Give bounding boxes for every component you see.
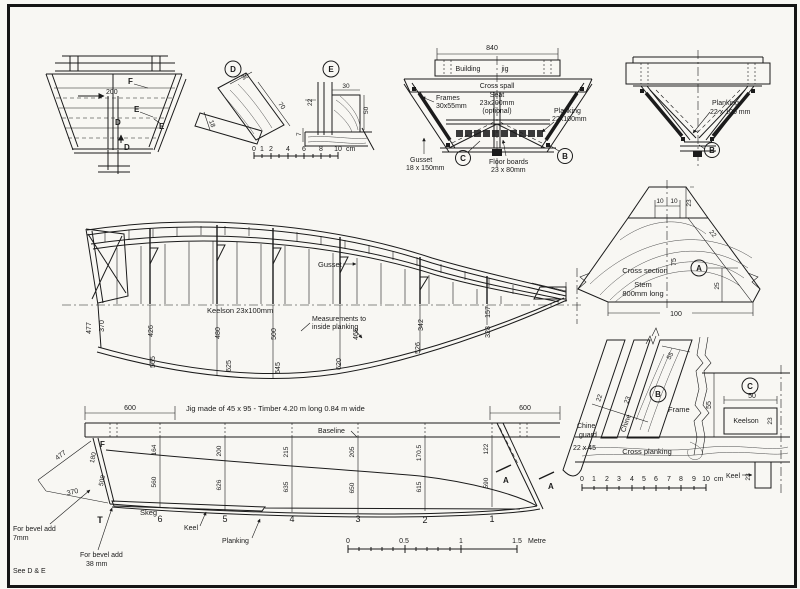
plan-chine-curve [106,450,537,506]
chine-dim-22: 22 [595,393,604,402]
detail-e: E 30 22 50 7 [296,61,374,150]
plan-jig-note: Jig made of 45 x 95 - Timber 4.20 m long… [186,404,365,413]
cm-c-10: 10 [702,476,710,483]
mid-seat-lines [446,120,550,124]
mid-gusset-label1: Gusset [410,157,432,164]
plan-label-a1: A [503,476,509,485]
cm-c-6: 6 [654,476,658,483]
keel-rect [755,462,771,488]
profile-meas-label2: inside planking [312,324,358,331]
profile-dim: 500 [271,328,278,340]
profile-meas-label1: Measurements to [312,316,366,323]
cm-c-7: 7 [667,476,671,483]
note-bevel1-line2: 7mm [13,535,29,542]
cm-s-0: 0 [252,146,256,153]
note-bevel1-line1: For bevel add [13,526,56,533]
metre-1: 1 [459,538,463,545]
plan-dim: 164 [151,444,158,455]
profile-dim: 565 [150,356,157,368]
mid-floor-label1: Floor boards [489,159,529,166]
midship-section: 840 Building jig Cross spall Frames 30x5… [404,45,592,174]
plan-keel-leader [200,512,206,526]
plan-dim: 200 [216,445,223,456]
mid-c-leader [468,141,480,152]
plan-keel-label: Keel [184,525,198,532]
profile-bottom-1 [98,298,564,374]
mid-frames-label2: 30x55mm [436,103,467,110]
detail-e-dim-top: 30 [342,83,350,90]
plan-bow-hidden [500,428,518,464]
stern-dim-200: 200 [106,89,118,96]
profile-dim: 370 [99,320,106,332]
cm-s-1: 1 [260,146,264,153]
mid-building-label: Building [456,66,481,73]
bow-planking-label1: Planking [712,100,739,107]
profile-dim: 426 [148,325,155,337]
plan-dim: 626 [216,479,223,490]
detail-e-badge: E [328,65,334,74]
stem-dim-25: 25 [714,282,721,290]
profile-gussets [150,245,428,290]
chine-guard-label1: Chine [577,423,595,430]
mid-badge-b: B [562,152,568,161]
detail-e-dim-right: 50 [363,106,370,114]
note-bevel2-line1: For bevel add [80,552,123,559]
plan-dim: 635 [283,481,290,492]
profile-bottom-2 [97,300,567,379]
metre-bar [348,545,517,553]
profile-dim: 620 [336,358,343,370]
stem-dim-10a: 10 [656,198,664,205]
stem-break-marks [578,273,760,289]
bow-hull-outline [633,86,762,151]
profile-view: 477 370 426 480 500 465 342 157 565 625 … [62,222,584,378]
bow-section: Planking 22 x 100 mm B [626,50,770,168]
profile-gusset-label: Gusset [318,260,343,269]
plan-dim: 650 [349,482,356,493]
plan-dim-180: 180 [89,451,98,463]
profile-stringer-2 [93,241,559,302]
cm-c-5: 5 [642,476,646,483]
cm-s-bar [254,152,338,159]
plan-station-6: 6 [157,514,162,524]
plan-dim: 560 [151,476,158,487]
profile-dim: 625 [226,360,233,372]
mid-floor-label2: 23 x 80mm [491,167,526,174]
plan-dim-370: 370 [66,488,79,497]
profile-dim: 526 [415,342,422,354]
keelson-label: Keelson [733,418,758,425]
plan-skeg-keel [112,501,520,511]
chine-dim-55-vert: 55 [706,401,713,409]
chine-chine-label: Chine [620,414,633,434]
detail-e-dim-bottom: 7 [296,132,303,136]
detail-e-dim-left: 22 [307,98,314,106]
metre-15: 1.5 [512,538,522,545]
stem-section: 10 10 23 22 75 25 100 Cross section Stem… [578,180,760,318]
cm-s-8: 8 [319,146,323,153]
plan-planking-label: Planking [222,538,249,545]
stern-label-e1: E [134,105,140,114]
cm-c-2: 2 [605,476,609,483]
bow-keel-bolt [693,151,702,157]
chine-badge-b: B [655,390,661,399]
cross-planking-label: Cross planking [622,447,672,456]
mid-planking-label1: Planking [554,108,581,115]
cm-s-6: 6 [302,146,306,153]
stern-jig-beams [55,56,175,71]
stem-dim-22: 22 [707,229,717,239]
stern-label-f: F [128,77,133,86]
keel-dim-23: 23 [745,473,752,481]
frame-band [627,340,692,438]
plan-station-1: 1 [489,514,494,524]
profile-dim: 480 [215,327,222,339]
stern-view: 200 F E E D D [46,56,186,174]
mid-planking-label2: 22x100mm [552,116,587,123]
stem-title: Cross section [622,266,667,275]
plan-dim-600-right: 600 [519,405,531,412]
bow-planking-label2: 22 x 100 mm [710,109,751,116]
stem-dim-75: 75 [671,258,678,266]
chine-guard-label2: guard [579,432,597,439]
detail-d-badge: D [230,65,236,74]
chine-detail: 22 23 55 B Frame Chine Chine guard 22 x … [563,328,790,495]
plan-dim: 215 [283,446,290,457]
profile-dim: 157 [485,306,492,318]
profile-keelson-label: Keelson 23x100mm [207,306,273,315]
metre-unit: Metre [528,538,546,545]
chine-break-top [646,328,659,344]
plan-station-T: T [97,515,103,525]
chine-guard-band [563,340,625,476]
chine-badge-c: C [747,382,753,391]
detail-e-vertical-plank [318,82,332,135]
metre-scale: 0 0.5 1 1.5 Metre [346,538,546,553]
plan-dim-477: 477 [54,449,68,462]
plan-label-a2: A [548,482,554,491]
plan-baseline-label: Baseline [318,428,345,435]
metre-05: 0.5 [399,538,409,545]
detail-d-dim-lines [230,72,290,126]
mid-badge-c: C [460,154,466,163]
detail-e-plank-grain [308,137,368,144]
stem-dim-23: 23 [686,199,693,207]
stem-label: Stem [634,280,652,289]
profile-dim: 328 [485,326,492,338]
mid-seat-label2: 23x200mm [480,100,515,107]
mid-frames-label1: Frames [436,95,460,102]
plan-drawing: 200 F E E D D D 30 70 18 E [0,0,800,589]
profile-dim: 342 [418,319,425,331]
note-bevel2-line2: 38 mm [86,561,108,568]
plan-station-2: 2 [422,515,427,525]
plan-label-f: F [100,440,105,449]
profile-dim: 477 [86,322,93,334]
cm-c-8: 8 [679,476,683,483]
cm-s-10: 10 [334,146,342,153]
plan-dim: 205 [349,446,356,457]
stern-label-d2: D [124,143,130,152]
cm-scale-small: 0 1 2 4 6 8 10 cm [252,146,355,159]
plan-skeg-label: Skeg [140,508,157,517]
cm-c-0: 0 [580,476,584,483]
stem-length: 800mm long [622,289,663,298]
profile-dim: 645 [275,362,282,374]
cm-c-bar [582,484,706,491]
detail-d-cross-strip [195,113,262,144]
cm-s-2: 2 [269,146,273,153]
stern-hull-outline [46,74,186,153]
plan-view: 600 600 Jig made of 45 x 95 - Timber 4.2… [38,404,560,545]
stem-badge-a: A [696,264,702,273]
cross-planking-grain [582,442,788,460]
stem-dim-100: 100 [670,311,682,318]
plan-baseline-leader [351,431,357,437]
mid-dim-840: 840 [486,45,498,52]
profile-sheer-1 [87,222,566,292]
profile-stem-wedge [534,287,566,299]
cm-c-3: 3 [617,476,621,483]
plan-station-lines [160,437,492,513]
mid-seat-label1: Seat [490,92,504,99]
detail-e-block-grain [334,96,360,132]
plan-station-5: 5 [222,514,227,524]
chine-frame-label: Frame [668,405,690,414]
chine-dim-55-diag: 55 [666,351,676,361]
cm-s-unit: cm [346,146,356,153]
mid-keel-bolt [492,149,502,156]
mid-jig-label: jig [500,66,508,73]
plan-dim: 590 [483,477,490,488]
cm-c-unit: cm [714,476,724,483]
chine-dim-50: 50 [748,393,756,400]
keelson-dim-23: 23 [767,417,774,425]
metre-0: 0 [346,538,350,545]
cm-c-1: 1 [592,476,596,483]
stem-dim-10b: 10 [670,198,678,205]
cm-c-9: 9 [692,476,696,483]
bow-badge-b: B [709,146,715,155]
detail-e-chine-block [332,95,360,132]
chine-dim55-line [662,346,690,352]
boat-plan-sheet: 200 F E E D D D 30 70 18 E [0,0,800,589]
plan-dim: 170.5 [416,444,423,461]
mid-gusset-label2: 18 x 150mm [406,165,445,172]
plan-station-4: 4 [289,514,294,524]
mid-seat-label3: (optional) [482,108,511,115]
stern-label-d1: D [115,118,121,127]
stern-e1-leader [140,112,153,117]
cm-c-4: 4 [630,476,634,483]
detail-d: D 30 70 18 [195,61,290,144]
plan-dim-508: 508 [98,474,107,486]
plan-dim-600-left: 600 [124,405,136,412]
plan-planking-leader [252,519,260,538]
stern-f-leader [134,84,148,88]
plan-station-3: 3 [355,514,360,524]
plan-dim: 122 [483,443,490,454]
note-see-de: See D & E [13,568,46,575]
keel-label: Keel [726,473,740,480]
stem-outline [578,187,760,302]
detail-d-dim-bottom: 18 [207,119,216,129]
mid-jig-beam [435,60,560,76]
plan-dim: 615 [416,481,423,492]
cm-s-4: 4 [286,146,290,153]
